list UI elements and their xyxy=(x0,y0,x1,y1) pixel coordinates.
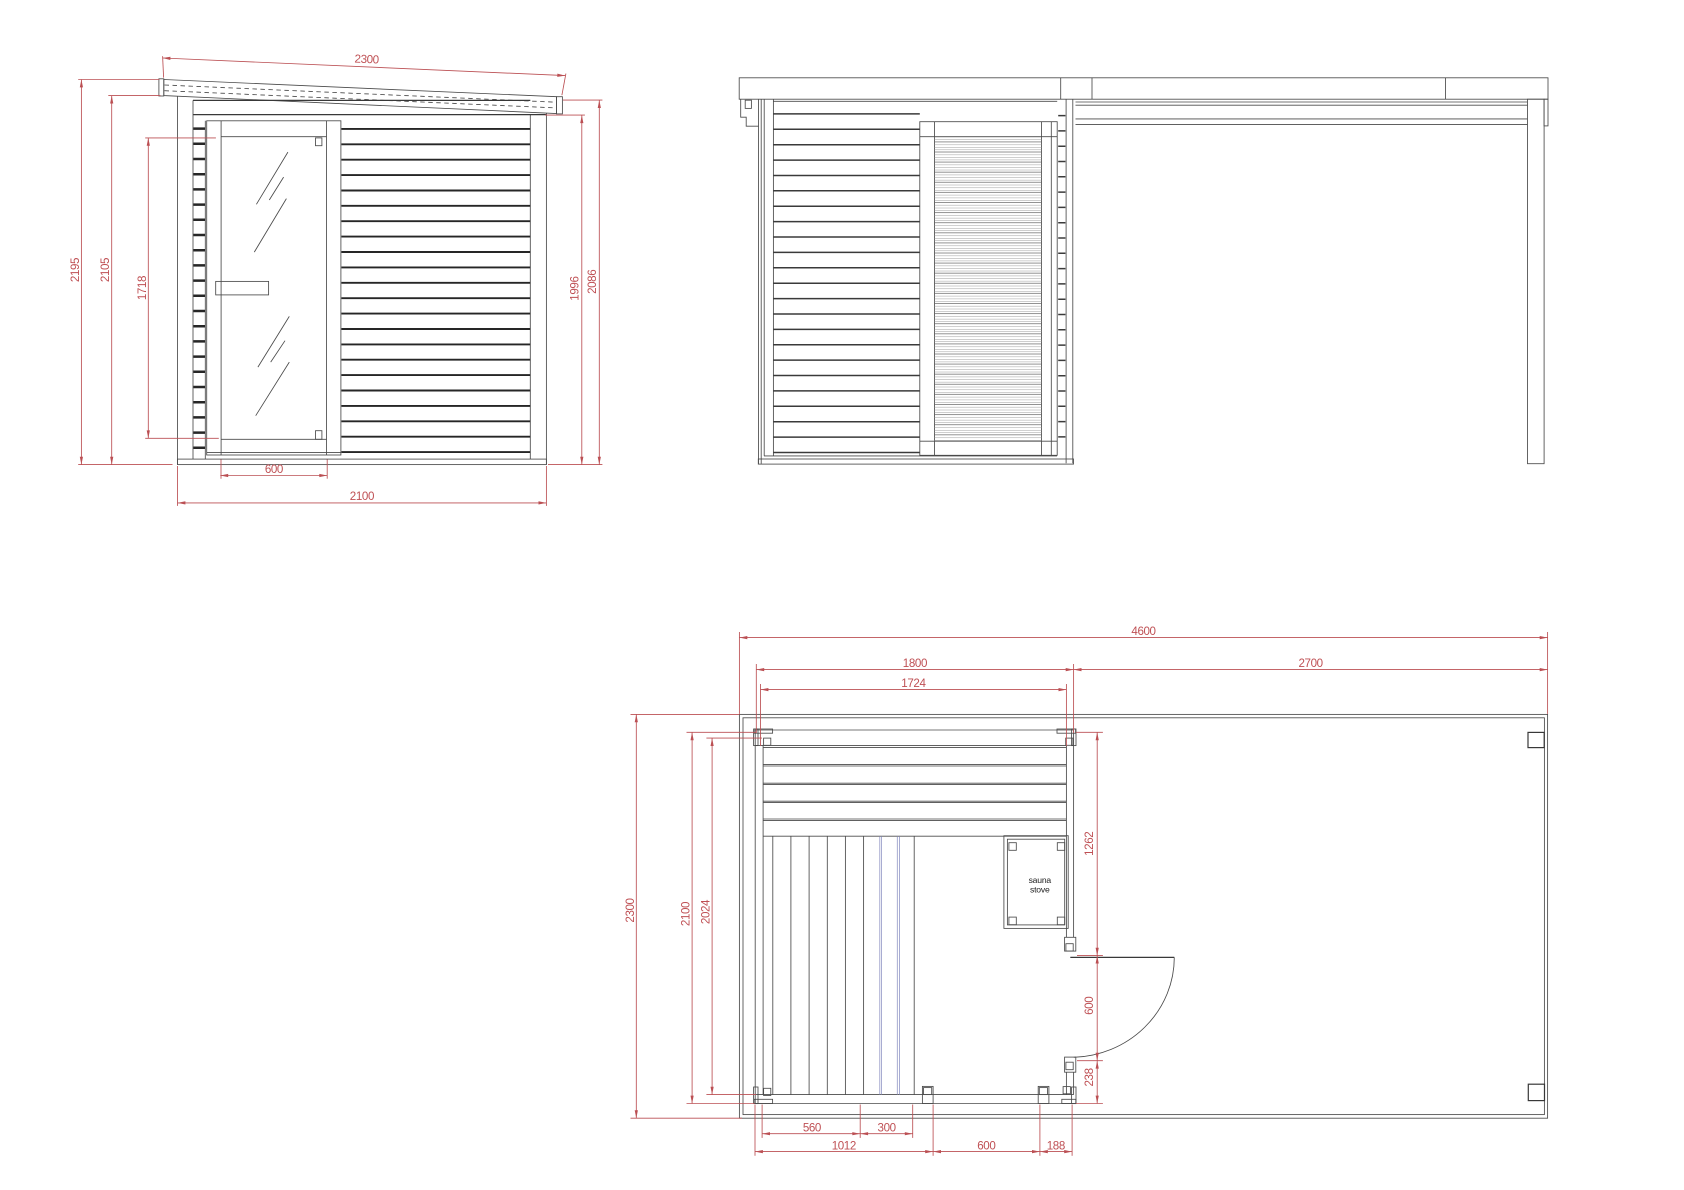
svg-text:2100: 2100 xyxy=(350,490,374,503)
svg-text:560: 560 xyxy=(803,1121,821,1134)
svg-text:1262: 1262 xyxy=(1083,832,1096,856)
svg-text:600: 600 xyxy=(977,1139,995,1152)
svg-text:2300: 2300 xyxy=(354,52,379,66)
svg-text:300: 300 xyxy=(878,1121,896,1134)
svg-text:sauna: sauna xyxy=(1029,875,1052,885)
svg-text:2300: 2300 xyxy=(624,898,637,922)
svg-text:188: 188 xyxy=(1047,1139,1065,1152)
svg-text:2195: 2195 xyxy=(69,258,82,282)
svg-text:1800: 1800 xyxy=(903,657,927,670)
svg-text:2100: 2100 xyxy=(679,902,692,926)
svg-text:600: 600 xyxy=(265,463,283,476)
svg-text:1012: 1012 xyxy=(832,1139,856,1152)
svg-text:2105: 2105 xyxy=(99,258,112,282)
svg-text:1724: 1724 xyxy=(901,677,926,690)
svg-text:2024: 2024 xyxy=(699,899,712,924)
svg-text:238: 238 xyxy=(1083,1068,1096,1086)
svg-text:4600: 4600 xyxy=(1131,625,1155,638)
svg-text:1996: 1996 xyxy=(568,276,581,300)
svg-text:stove: stove xyxy=(1030,885,1050,895)
svg-text:2700: 2700 xyxy=(1298,657,1322,670)
svg-text:600: 600 xyxy=(1083,997,1096,1015)
svg-text:2086: 2086 xyxy=(586,270,599,294)
svg-text:1718: 1718 xyxy=(136,276,149,300)
